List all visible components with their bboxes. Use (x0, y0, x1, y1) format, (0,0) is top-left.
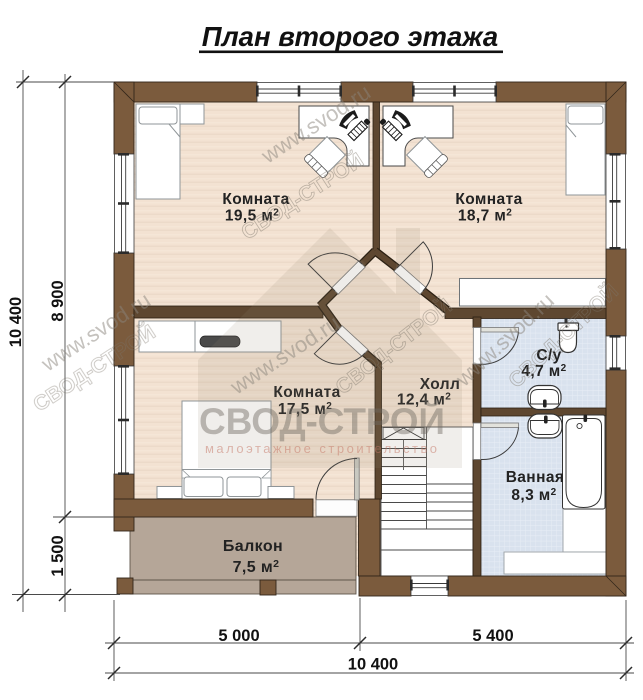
svg-text:8 900: 8 900 (49, 280, 67, 321)
svg-text:5 400: 5 400 (472, 627, 513, 645)
svg-text:СВОД-СТРОЙ: СВОД-СТРОЙ (199, 400, 445, 442)
svg-text:5 000: 5 000 (218, 627, 259, 645)
svg-text:1 500: 1 500 (49, 535, 67, 576)
svg-text:Балкон: Балкон (223, 538, 283, 555)
svg-text:7,5 м2: 7,5 м2 (233, 558, 280, 576)
svg-text:План второго этажа: План второго этажа (202, 21, 498, 52)
svg-text:18,7 м2: 18,7 м2 (458, 208, 512, 225)
svg-text:Комната: Комната (455, 191, 522, 208)
svg-text:Ванная: Ванная (506, 469, 565, 486)
svg-text:10 400: 10 400 (348, 656, 398, 674)
svg-text:8,3 м2: 8,3 м2 (511, 487, 556, 504)
svg-text:малоэтажное строительство: малоэтажное строительство (205, 441, 438, 456)
svg-text:10 400: 10 400 (7, 297, 25, 347)
